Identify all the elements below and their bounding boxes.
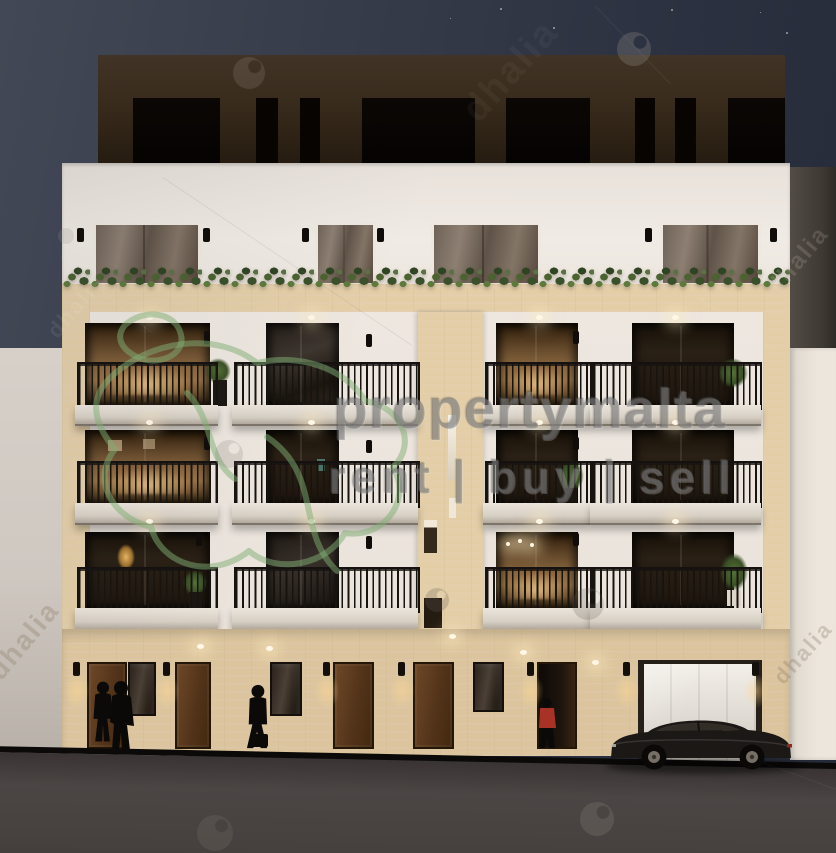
chandelier-light [506,542,510,546]
balcony-slab [232,608,418,631]
ceiling-light [672,519,679,524]
balcony-slab [75,608,218,631]
wall-vent [573,533,579,546]
sconce-glow [310,668,344,714]
sconce-glow [60,668,94,714]
ceiling-light [536,519,543,524]
person-red-jacket [536,698,558,750]
brand-watermark: propertymalta [333,376,726,442]
top-floor-window [362,98,475,163]
logo-circle-watermark [425,588,449,612]
terrace-hedge [62,264,790,292]
logo-circle-watermark [572,588,604,620]
shop-window [473,662,504,712]
parked-car [606,704,796,772]
ceiling-light [520,650,527,655]
wall-vent [573,331,579,344]
top-floor-window [728,98,785,163]
vent-slot [377,228,384,242]
vent-slot [203,228,210,242]
top-floor-window [300,98,320,163]
top-floor-window [506,98,590,163]
top-floor-window [133,98,220,163]
logo-circle-watermark [215,440,243,468]
star [450,18,451,19]
ceiling-light [592,660,599,665]
ceiling-light [672,315,679,320]
logo-circle-watermark [197,815,233,851]
entrance-door [413,662,454,749]
neighbor-wall-left [0,348,64,760]
neighbor-wall-right [790,348,836,760]
sconce-glow [150,668,184,714]
stone-pier-right [763,312,790,642]
tagline-watermark: rent | buy | sell [328,450,735,504]
vent-slot [770,228,777,242]
logo-circle-watermark [233,57,265,89]
chandelier-light [530,543,534,547]
logo-circle-watermark [580,802,614,836]
ceiling-light [536,315,543,320]
ceiling-light [197,644,204,649]
vent-slot [645,228,652,242]
ceiling-light [449,634,456,639]
sconce-glow [385,668,419,714]
chandelier-light [518,539,522,543]
star [500,8,502,10]
top-floor-window [635,98,655,163]
night-render-scene: propertymalta rent | buy | sell dhalia d… [0,0,836,853]
ceiling-light [266,646,273,651]
shop-window [270,662,302,716]
vent-slot [302,228,309,242]
top-floor-window [675,98,696,163]
star [671,9,673,11]
vent-slot [77,228,84,242]
briefcase [252,734,268,747]
top-floor-window [256,98,278,163]
logo-circle-watermark [617,32,651,66]
logo-circle-watermark [58,228,74,244]
balcony-railing [592,567,762,613]
star [786,32,788,34]
star [760,12,761,13]
balcony-slab [590,608,761,631]
person-silhouette [106,680,138,752]
